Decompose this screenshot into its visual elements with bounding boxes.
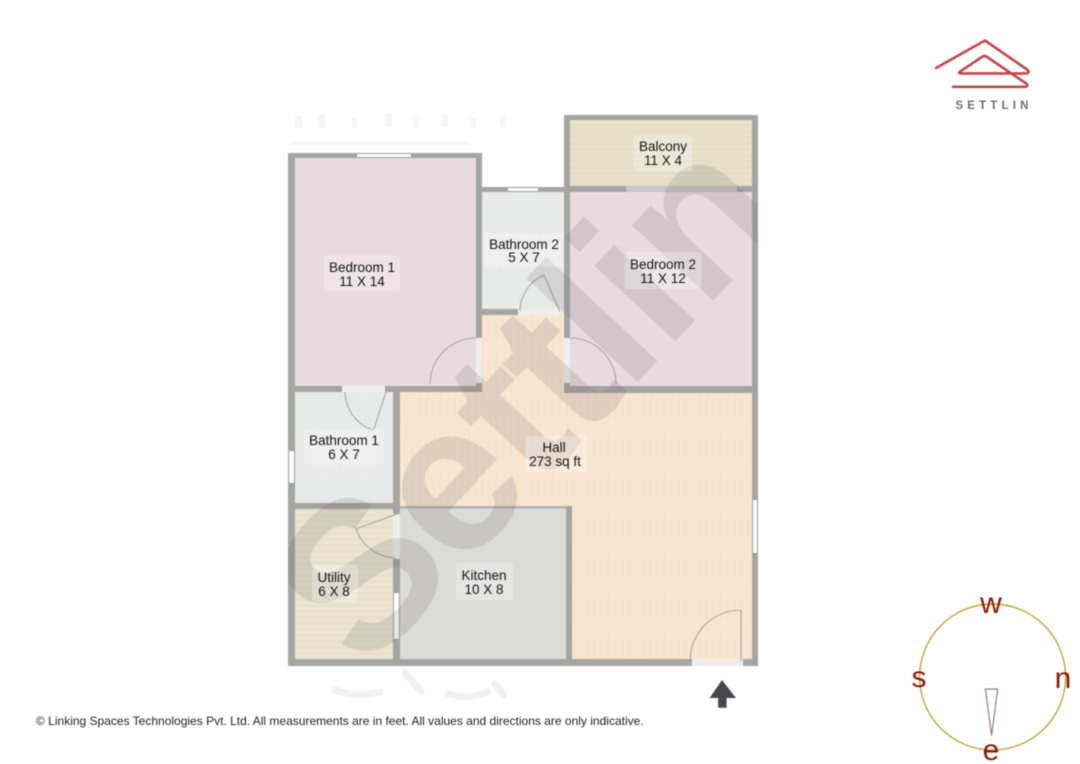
svg-text:s: s — [912, 661, 927, 694]
svg-text:Bedroom 1: Bedroom 1 — [329, 260, 395, 275]
svg-text:Kitchen: Kitchen — [461, 568, 506, 583]
svg-text:n: n — [1055, 662, 1072, 695]
svg-text:273 sq ft: 273 sq ft — [529, 454, 581, 469]
svg-text:11 X 14: 11 X 14 — [339, 274, 385, 289]
svg-text:6 X 8: 6 X 8 — [318, 584, 350, 599]
svg-text:5 X 7: 5 X 7 — [508, 250, 540, 265]
svg-text:Bedroom 2: Bedroom 2 — [630, 257, 696, 272]
svg-text:11 X 4: 11 X 4 — [644, 153, 683, 168]
svg-text:© Linking Spaces Technologies: © Linking Spaces Technologies Pvt. Ltd. … — [36, 714, 644, 728]
svg-text:e: e — [983, 734, 1000, 764]
svg-text:Utility: Utility — [318, 570, 351, 585]
svg-text:Hall: Hall — [542, 440, 565, 455]
svg-text:10 X 8: 10 X 8 — [464, 582, 503, 597]
svg-text:Bathroom 1: Bathroom 1 — [309, 433, 379, 448]
svg-text:Balcony: Balcony — [639, 139, 687, 154]
svg-text:w: w — [979, 587, 1002, 620]
svg-text:11 X 12: 11 X 12 — [640, 271, 686, 286]
svg-text:SETTLIN: SETTLIN — [955, 100, 1032, 112]
svg-text:6 X 7: 6 X 7 — [328, 447, 360, 462]
